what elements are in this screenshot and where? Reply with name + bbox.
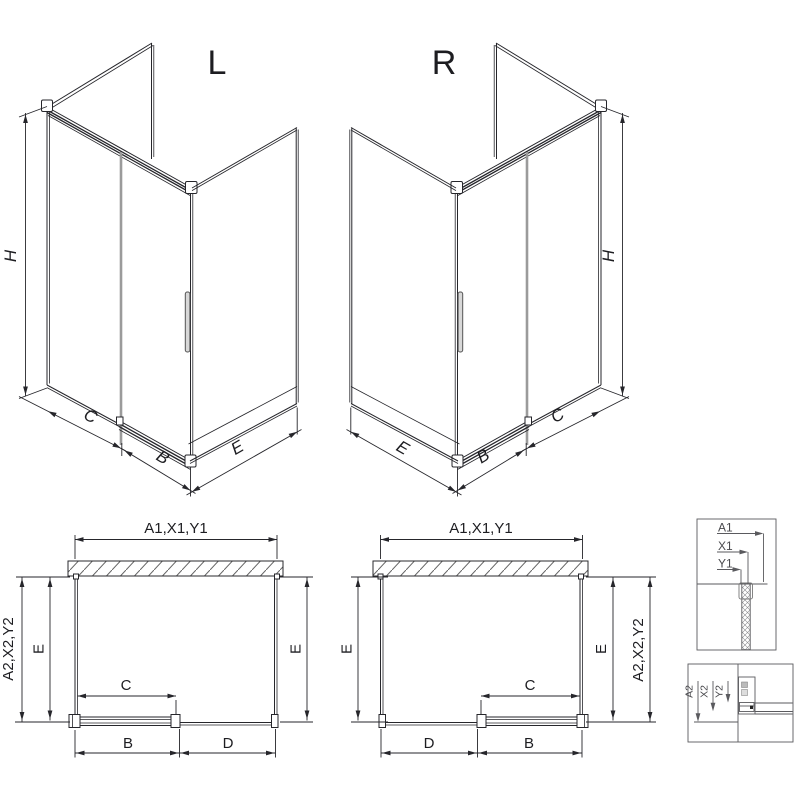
wall-section-hatch xyxy=(373,561,588,576)
plan-view-left: A1,X1,Y1 A2,X2,Y2 E E C B D xyxy=(0,520,313,758)
detail-top-label-a1: A1 xyxy=(718,521,733,535)
plan-left-dim-e-left: E xyxy=(31,644,48,654)
detail-bottom-label-a2: A2 xyxy=(684,685,696,698)
iso-view-left: L H C B E xyxy=(1,43,302,497)
iso-left-config-label: L xyxy=(208,44,227,82)
iso-left-dim-c: C xyxy=(81,405,101,428)
plan-left-dim-d: D xyxy=(223,735,234,752)
wall-profile-section xyxy=(742,584,750,650)
iso-left-geometry xyxy=(19,43,302,497)
plan-left-dim-a1: A1,X1,Y1 xyxy=(144,520,207,537)
iso-right-dim-h: H xyxy=(599,249,618,262)
iso-right-geometry xyxy=(347,43,630,497)
plan-right-dim-d: D xyxy=(424,735,435,752)
plan-left-dim-c: C xyxy=(121,677,132,694)
plan-right-dim-e-right: E xyxy=(593,644,610,654)
plan-left-dim-b: B xyxy=(123,735,133,752)
technical-drawing: L H C B E R H E B C A1,X1,Y1 xyxy=(0,0,800,800)
plan-left-dim-e-right: E xyxy=(288,644,305,654)
iso-left-dim-b: B xyxy=(153,446,173,468)
iso-left-dim-h: H xyxy=(1,249,20,262)
iso-left-dim-e: E xyxy=(228,436,248,458)
detail-bottom-label-y2: Y2 xyxy=(714,685,726,698)
plan-right-dim-a2: A2,X2,Y2 xyxy=(630,618,647,681)
detail-box-top: A1 X1 Y1 xyxy=(697,519,776,650)
plan-left-dim-a2: A2,X2,Y2 xyxy=(0,617,17,680)
iso-right-dim-e: E xyxy=(393,437,413,459)
detail-top-label-y1: Y1 xyxy=(718,557,733,571)
wall-section-hatch xyxy=(68,561,283,576)
plan-right-dim-c: C xyxy=(525,677,536,694)
plan-right-dim-e-left: E xyxy=(339,644,356,654)
plan-right-dim-b: B xyxy=(524,735,534,752)
plan-view-right: A1,X1,Y1 E E A2,X2,Y2 C D B xyxy=(339,520,657,758)
iso-view-right: R H E B C xyxy=(347,43,630,497)
detail-box-bottom: A2 X2 Y2 xyxy=(684,664,794,742)
detail-bottom-label-x2: X2 xyxy=(699,685,711,698)
plan-right-dim-a1: A1,X1,Y1 xyxy=(449,520,512,537)
detail-top-label-x1: X1 xyxy=(718,539,733,553)
iso-right-config-label: R xyxy=(432,44,457,82)
drawing-canvas: L H C B E R H E B C A1,X1,Y1 xyxy=(0,0,800,800)
